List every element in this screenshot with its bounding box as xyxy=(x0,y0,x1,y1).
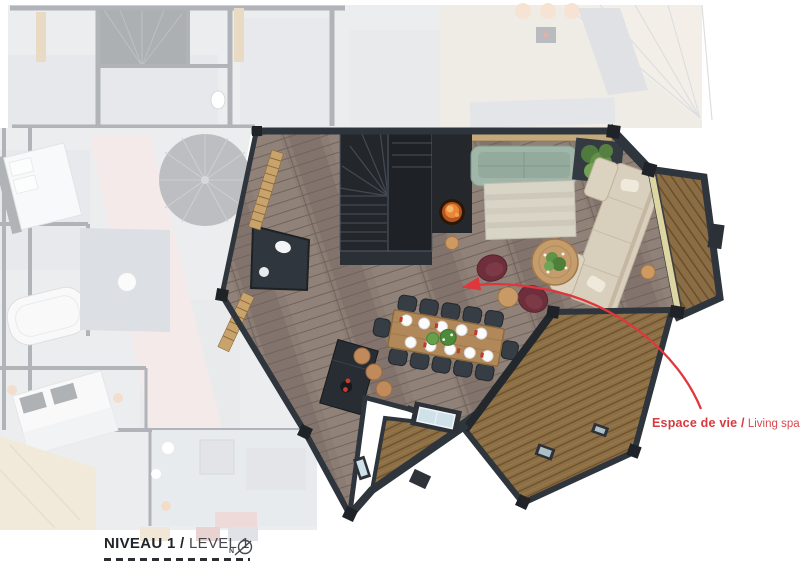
annotation-text-en: Living space xyxy=(745,418,800,430)
north-letter: N xyxy=(229,548,234,555)
side-table xyxy=(498,287,518,307)
tip-deck xyxy=(350,418,463,515)
coffee-table xyxy=(532,239,578,285)
faded-wood-door xyxy=(36,12,46,62)
floor-plan-page: Espace de vie / Living space NIVEAU 1 / … xyxy=(0,0,800,569)
faded-wood-door xyxy=(234,8,244,62)
annotation-text-fr: Espace de vie / xyxy=(652,416,745,430)
green-sofa xyxy=(471,146,577,186)
faded-upper-staircase xyxy=(97,8,188,68)
fireplace xyxy=(432,131,472,233)
north-compass-icon: N xyxy=(228,538,258,558)
vent-box xyxy=(409,469,431,489)
wood-stool xyxy=(446,237,459,250)
staircase xyxy=(340,131,432,265)
faded-toilet xyxy=(211,91,225,109)
title-dashed-underline xyxy=(104,558,250,561)
area-rug xyxy=(484,180,576,239)
wood-stool xyxy=(641,265,655,279)
living-space-annotation: Espace de vie / Living space xyxy=(652,416,800,430)
level-title-fr: NIVEAU 1 / xyxy=(104,535,185,552)
floor-plan-rendering xyxy=(0,0,800,569)
